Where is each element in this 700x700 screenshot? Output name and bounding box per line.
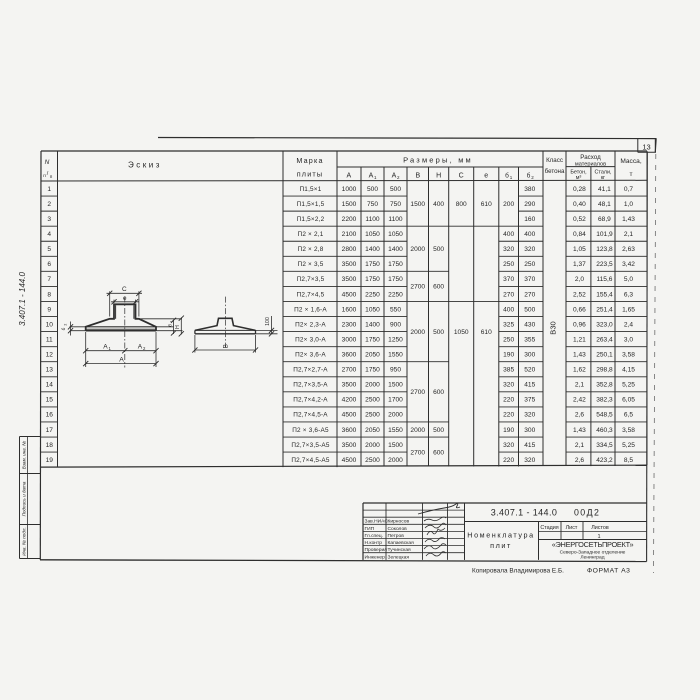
svg-text:П2,7×3,5-А: П2,7×3,5-А [293, 382, 328, 389]
svg-text:2,1: 2,1 [624, 231, 633, 238]
svg-text:3500: 3500 [342, 442, 357, 449]
svg-text:Марка: Марка [296, 156, 323, 165]
svg-text:8: 8 [47, 291, 51, 298]
svg-text:500: 500 [524, 306, 535, 313]
svg-text:A: A [119, 356, 124, 363]
svg-text:Стадия: Стадия [540, 525, 558, 531]
svg-text:3,42: 3,42 [622, 261, 635, 268]
svg-text:1550: 1550 [388, 427, 403, 434]
svg-text:220: 220 [503, 397, 514, 404]
svg-text:101,9: 101,9 [596, 231, 613, 238]
svg-text:е: е [123, 295, 127, 302]
svg-text:400: 400 [433, 201, 444, 208]
svg-text:385: 385 [503, 367, 514, 374]
svg-text:1400: 1400 [388, 246, 403, 253]
svg-text:290: 290 [524, 201, 535, 208]
svg-text:610: 610 [481, 329, 492, 336]
svg-text:323,0: 323,0 [596, 321, 613, 328]
svg-text:220: 220 [503, 412, 514, 419]
svg-text:П2,7×4,5: П2,7×4,5 [297, 291, 325, 298]
svg-text:1750: 1750 [365, 336, 380, 343]
svg-text:м³: м³ [576, 175, 582, 181]
svg-text:2,52: 2,52 [573, 291, 586, 298]
svg-text:1550: 1550 [388, 351, 403, 358]
svg-text:00Д2: 00Д2 [574, 508, 600, 518]
svg-text:1: 1 [597, 534, 600, 540]
svg-text:320: 320 [524, 457, 535, 464]
svg-text:5,25: 5,25 [622, 442, 635, 449]
svg-text:б: б [505, 172, 509, 180]
svg-text:600: 600 [433, 389, 444, 396]
svg-text:2050: 2050 [365, 427, 380, 434]
svg-text:В: В [415, 173, 420, 180]
svg-text:2,6: 2,6 [575, 457, 584, 464]
svg-text:2200: 2200 [342, 216, 357, 223]
svg-text:3: 3 [47, 216, 51, 223]
svg-text:П1,5×1,5: П1,5×1,5 [297, 201, 325, 208]
svg-text:2050: 2050 [365, 351, 380, 358]
svg-text:В30: В30 [549, 321, 558, 334]
svg-text:7: 7 [47, 276, 51, 283]
svg-text:1: 1 [47, 186, 51, 193]
svg-text:бетона: бетона [545, 168, 565, 175]
svg-text:Петров: Петров [388, 533, 405, 539]
svg-text:«ЭНЕРГОСЕТЬПРОЕКТ»: «ЭНЕРГОСЕТЬПРОЕКТ» [552, 540, 634, 549]
svg-text:4500: 4500 [342, 457, 357, 464]
svg-text:160: 160 [524, 216, 535, 223]
svg-text:2700: 2700 [410, 284, 425, 291]
svg-text:Размеры, мм: Размеры, мм [403, 156, 473, 165]
svg-text:6: 6 [47, 261, 51, 268]
svg-text:250,1: 250,1 [596, 351, 613, 358]
svg-text:18: 18 [46, 442, 54, 449]
svg-text:5: 5 [47, 246, 51, 253]
svg-text:325: 325 [503, 321, 514, 328]
svg-text:1500: 1500 [342, 201, 357, 208]
svg-text:13: 13 [642, 143, 650, 152]
svg-text:1,43: 1,43 [573, 351, 586, 358]
svg-text:Проверил: Проверил [365, 547, 388, 553]
svg-text:Тучинская: Тучинская [388, 547, 412, 553]
svg-text:1,43: 1,43 [622, 216, 635, 223]
svg-text:250: 250 [503, 261, 514, 268]
svg-text:1100: 1100 [388, 216, 403, 223]
svg-text:П2× 2,3-А: П2× 2,3-А [295, 321, 326, 328]
svg-text:Инв. № подл.: Инв. № подл. [21, 527, 26, 556]
svg-text:13: 13 [46, 367, 54, 374]
svg-text:Листов: Листов [591, 525, 609, 531]
svg-text:400: 400 [524, 231, 535, 238]
svg-text:800: 800 [456, 201, 467, 208]
svg-text:370: 370 [503, 276, 514, 283]
svg-text:П2 × 1,6-А: П2 × 1,6-А [294, 306, 327, 313]
svg-text:1050: 1050 [365, 231, 380, 238]
svg-text:П2 × 2,1: П2 × 2,1 [298, 231, 324, 238]
svg-text:2,1: 2,1 [575, 382, 584, 389]
svg-text:ФОРМАТ А3: ФОРМАТ А3 [587, 568, 630, 575]
svg-text:2000: 2000 [365, 442, 380, 449]
svg-text:270: 270 [503, 291, 514, 298]
svg-text:е: е [484, 173, 488, 180]
svg-text:Инженер: Инженер [365, 554, 386, 560]
svg-text:2250: 2250 [388, 291, 403, 298]
svg-text:300: 300 [524, 427, 535, 434]
svg-text:4200: 4200 [342, 397, 357, 404]
svg-text:Зелецкая: Зелецкая [388, 554, 410, 560]
svg-text:6,3: 6,3 [624, 291, 633, 298]
svg-text:2,0: 2,0 [575, 276, 584, 283]
svg-text:3600: 3600 [342, 427, 357, 434]
svg-text:2800: 2800 [342, 246, 357, 253]
svg-text:400: 400 [503, 231, 514, 238]
svg-text:200: 200 [503, 201, 514, 208]
svg-text:1050: 1050 [454, 329, 469, 336]
svg-text:плиты: плиты [297, 170, 324, 179]
svg-text:1050: 1050 [388, 231, 403, 238]
svg-text:370: 370 [524, 276, 535, 283]
svg-text:Н: Н [436, 173, 441, 180]
svg-text:2500: 2500 [365, 397, 380, 404]
svg-text:1,65: 1,65 [622, 306, 635, 313]
svg-text:Ленинград: Ленинград [580, 555, 604, 561]
svg-text:п: п [43, 174, 46, 179]
svg-text:6,5: 6,5 [624, 412, 633, 419]
svg-text:4500: 4500 [342, 291, 357, 298]
svg-text:C: C [122, 286, 127, 293]
svg-text:Масса,: Масса, [620, 158, 641, 165]
svg-text:0,28: 0,28 [573, 186, 586, 193]
svg-text:2000: 2000 [365, 382, 380, 389]
svg-text:3000: 3000 [342, 336, 357, 343]
svg-text:1050: 1050 [365, 306, 380, 313]
svg-text:2000: 2000 [410, 427, 425, 434]
svg-text:1,05: 1,05 [573, 246, 586, 253]
svg-text:3500: 3500 [342, 276, 357, 283]
svg-text:3500: 3500 [342, 261, 357, 268]
svg-text:250: 250 [503, 336, 514, 343]
svg-text:1700: 1700 [388, 397, 403, 404]
svg-text:П2× 3,0-А: П2× 3,0-А [295, 336, 326, 343]
svg-text:П2,7×3,5: П2,7×3,5 [297, 276, 325, 283]
svg-text:1750: 1750 [365, 367, 380, 374]
svg-text:12: 12 [46, 351, 54, 358]
svg-text:3600: 3600 [342, 351, 357, 358]
svg-text:375: 375 [524, 397, 535, 404]
svg-text:320: 320 [503, 246, 514, 253]
svg-text:190: 190 [503, 427, 514, 434]
svg-text:т: т [629, 171, 632, 178]
svg-text:Подпись и дата: Подпись и дата [21, 481, 26, 516]
svg-text:2700: 2700 [410, 389, 425, 396]
svg-text:355: 355 [524, 336, 535, 343]
svg-text:460,3: 460,3 [596, 427, 613, 434]
svg-text:41,1: 41,1 [598, 186, 611, 193]
svg-text:610: 610 [481, 201, 492, 208]
svg-text:8,5: 8,5 [624, 457, 633, 464]
svg-text:П2 × 2,8: П2 × 2,8 [298, 246, 324, 253]
svg-text:19: 19 [46, 457, 54, 464]
svg-text:2: 2 [47, 201, 51, 208]
svg-text:2700: 2700 [410, 449, 425, 456]
svg-text:1250: 1250 [388, 336, 403, 343]
svg-text:2000: 2000 [388, 457, 403, 464]
svg-text:11: 11 [46, 336, 53, 343]
svg-text:П2 × 3,6-А5: П2 × 3,6-А5 [292, 427, 329, 434]
svg-text:0,84: 0,84 [573, 231, 586, 238]
svg-text:3,58: 3,58 [622, 427, 635, 434]
svg-text:2000: 2000 [410, 246, 425, 253]
svg-text:1500: 1500 [410, 201, 425, 208]
svg-text:П1,5×1: П1,5×1 [300, 186, 322, 193]
svg-text:320: 320 [524, 246, 535, 253]
svg-text:14: 14 [46, 382, 54, 389]
svg-text:298,8: 298,8 [596, 367, 613, 374]
svg-text:750: 750 [367, 201, 378, 208]
svg-text:Соколов: Соколов [388, 526, 408, 532]
svg-text:1100: 1100 [365, 216, 380, 223]
svg-text:415: 415 [524, 382, 535, 389]
svg-text:1500: 1500 [388, 382, 403, 389]
svg-text:ГИП: ГИП [365, 526, 375, 532]
svg-text:2100: 2100 [342, 231, 357, 238]
svg-text:1400: 1400 [365, 246, 380, 253]
svg-text:N: N [45, 159, 50, 166]
svg-text:кг: кг [601, 175, 605, 181]
svg-text:Н: Н [175, 325, 181, 329]
svg-text:6,05: 6,05 [622, 397, 635, 404]
svg-text:1000: 1000 [342, 186, 357, 193]
svg-text:б: б [167, 324, 172, 327]
svg-text:415: 415 [524, 442, 535, 449]
svg-text:382,3: 382,3 [596, 397, 613, 404]
svg-text:1500: 1500 [388, 442, 403, 449]
svg-text:17: 17 [46, 427, 54, 434]
svg-text:352,8: 352,8 [596, 382, 613, 389]
svg-text:1,21: 1,21 [573, 336, 586, 343]
svg-text:Кирносов: Кирносов [388, 519, 410, 525]
svg-text:Номенклатура: Номенклатура [467, 531, 534, 540]
svg-text:П1,5×2,2: П1,5×2,2 [297, 216, 325, 223]
svg-text:423,2: 423,2 [596, 457, 613, 464]
svg-text:2000: 2000 [388, 412, 403, 419]
svg-text:1750: 1750 [365, 261, 380, 268]
svg-text:600: 600 [433, 284, 444, 291]
svg-text:190: 190 [503, 351, 514, 358]
svg-text:2,1: 2,1 [575, 442, 584, 449]
svg-text:П2,7×4,5-А: П2,7×4,5-А [293, 412, 328, 419]
svg-text:1750: 1750 [388, 276, 403, 283]
svg-text:0,66: 0,66 [573, 306, 586, 313]
svg-text:материалов: материалов [575, 162, 606, 168]
svg-text:б: б [61, 327, 67, 330]
svg-text:0,40: 0,40 [573, 201, 586, 208]
svg-text:500: 500 [433, 246, 444, 253]
svg-text:1750: 1750 [365, 276, 380, 283]
svg-text:950: 950 [390, 367, 401, 374]
svg-text:б: б [527, 172, 531, 180]
svg-text:A: A [369, 173, 374, 180]
svg-text:1750: 1750 [388, 261, 403, 268]
svg-text:Капаевская: Капаевская [388, 540, 415, 546]
svg-text:1,62: 1,62 [573, 367, 586, 374]
svg-text:263,4: 263,4 [596, 336, 613, 343]
svg-text:750: 750 [390, 201, 401, 208]
svg-text:520: 520 [524, 367, 535, 374]
svg-text:2: 2 [63, 324, 67, 326]
svg-text:Копировала Владимирова Е.Б.: Копировала Владимирова Е.Б. [472, 568, 564, 575]
svg-text:2,6: 2,6 [575, 412, 584, 419]
svg-text:3500: 3500 [342, 382, 357, 389]
svg-text:П2,7×2,7-А: П2,7×2,7-А [293, 367, 328, 374]
svg-text:4,15: 4,15 [622, 367, 635, 374]
svg-text:400: 400 [503, 306, 514, 313]
svg-text:123,8: 123,8 [596, 246, 613, 253]
svg-text:15: 15 [46, 397, 54, 404]
svg-text:3.407.1 - 144.0: 3.407.1 - 144.0 [18, 272, 27, 326]
svg-text:300: 300 [524, 351, 535, 358]
svg-text:2300: 2300 [342, 321, 357, 328]
svg-text:251,4: 251,4 [596, 306, 613, 313]
svg-text:3,0: 3,0 [624, 336, 633, 343]
svg-text:550: 550 [390, 306, 401, 313]
svg-text:Лист: Лист [566, 525, 578, 531]
svg-text:1400: 1400 [365, 321, 380, 328]
svg-text:В: В [223, 344, 230, 348]
svg-text:600: 600 [433, 449, 444, 456]
svg-text:С: С [459, 173, 464, 180]
svg-text:П2,7×3,5-А5: П2,7×3,5-А5 [291, 442, 329, 449]
svg-text:500: 500 [433, 329, 444, 336]
svg-text:2500: 2500 [365, 412, 380, 419]
svg-text:250: 250 [524, 261, 535, 268]
svg-text:3,58: 3,58 [622, 351, 635, 358]
svg-text:115,6: 115,6 [596, 276, 612, 283]
svg-text:1600: 1600 [342, 306, 357, 313]
svg-text:П2,7×4,2-А: П2,7×4,2-А [293, 397, 328, 404]
svg-text:68,9: 68,9 [598, 216, 611, 223]
svg-text:4: 4 [47, 231, 51, 238]
svg-text:500: 500 [390, 186, 401, 193]
svg-text:48,1: 48,1 [598, 201, 611, 208]
svg-text:5,0: 5,0 [624, 276, 633, 283]
svg-text:плит: плит [490, 541, 512, 550]
svg-text:0,7: 0,7 [624, 186, 633, 193]
svg-text:5,25: 5,25 [622, 382, 635, 389]
svg-text:2250: 2250 [365, 291, 380, 298]
svg-text:900: 900 [390, 321, 401, 328]
svg-text:2000: 2000 [410, 329, 425, 336]
svg-text:2,42: 2,42 [573, 397, 586, 404]
svg-text:334,5: 334,5 [596, 442, 613, 449]
svg-text:100: 100 [265, 317, 271, 326]
svg-text:П2× 3,6-А: П2× 3,6-А [295, 351, 326, 358]
svg-text:270: 270 [524, 291, 535, 298]
svg-text:Класс: Класс [546, 157, 563, 164]
svg-text:4500: 4500 [342, 412, 357, 419]
svg-text:10: 10 [46, 321, 54, 328]
svg-text:п: п [50, 175, 53, 180]
svg-text:380: 380 [524, 186, 535, 193]
svg-text:223,5: 223,5 [596, 261, 613, 268]
svg-text:2700: 2700 [342, 367, 357, 374]
svg-text:Гл.спец.: Гл.спец. [365, 533, 384, 539]
svg-text:548,5: 548,5 [596, 412, 613, 419]
svg-text:320: 320 [503, 382, 514, 389]
svg-text:320: 320 [503, 442, 514, 449]
svg-text:Зав.НИАС: Зав.НИАС [365, 519, 389, 525]
svg-text:16: 16 [46, 412, 54, 419]
svg-text:1,43: 1,43 [573, 427, 586, 434]
svg-text:2,63: 2,63 [622, 246, 635, 253]
svg-text:A: A [392, 173, 397, 180]
svg-text:1,0: 1,0 [624, 201, 633, 208]
svg-text:2,4: 2,4 [624, 321, 633, 328]
svg-text:0,52: 0,52 [573, 216, 586, 223]
svg-text:155,4: 155,4 [596, 291, 613, 298]
svg-text:500: 500 [433, 427, 444, 434]
svg-text:Эскиз: Эскиз [128, 161, 162, 170]
svg-text:1: 1 [170, 320, 174, 322]
svg-text:220: 220 [503, 457, 514, 464]
svg-text:П2 × 3,5: П2 × 3,5 [298, 261, 324, 268]
svg-text:Н.контр: Н.контр [365, 540, 383, 546]
svg-text:2500: 2500 [365, 457, 380, 464]
svg-text:1,37: 1,37 [573, 261, 586, 268]
svg-text:320: 320 [524, 412, 535, 419]
svg-text:0,96: 0,96 [573, 321, 586, 328]
svg-text:9: 9 [47, 306, 51, 313]
svg-text:500: 500 [367, 186, 378, 193]
svg-text:Взам. инв. №: Взам. инв. № [21, 441, 26, 469]
svg-text:3.407.1 - 144.0: 3.407.1 - 144.0 [491, 508, 558, 518]
svg-text:Расход: Расход [580, 154, 601, 161]
svg-text:430: 430 [524, 321, 535, 328]
svg-text:A: A [346, 173, 351, 180]
svg-text:П2,7×4,5-А5: П2,7×4,5-А5 [291, 457, 329, 464]
